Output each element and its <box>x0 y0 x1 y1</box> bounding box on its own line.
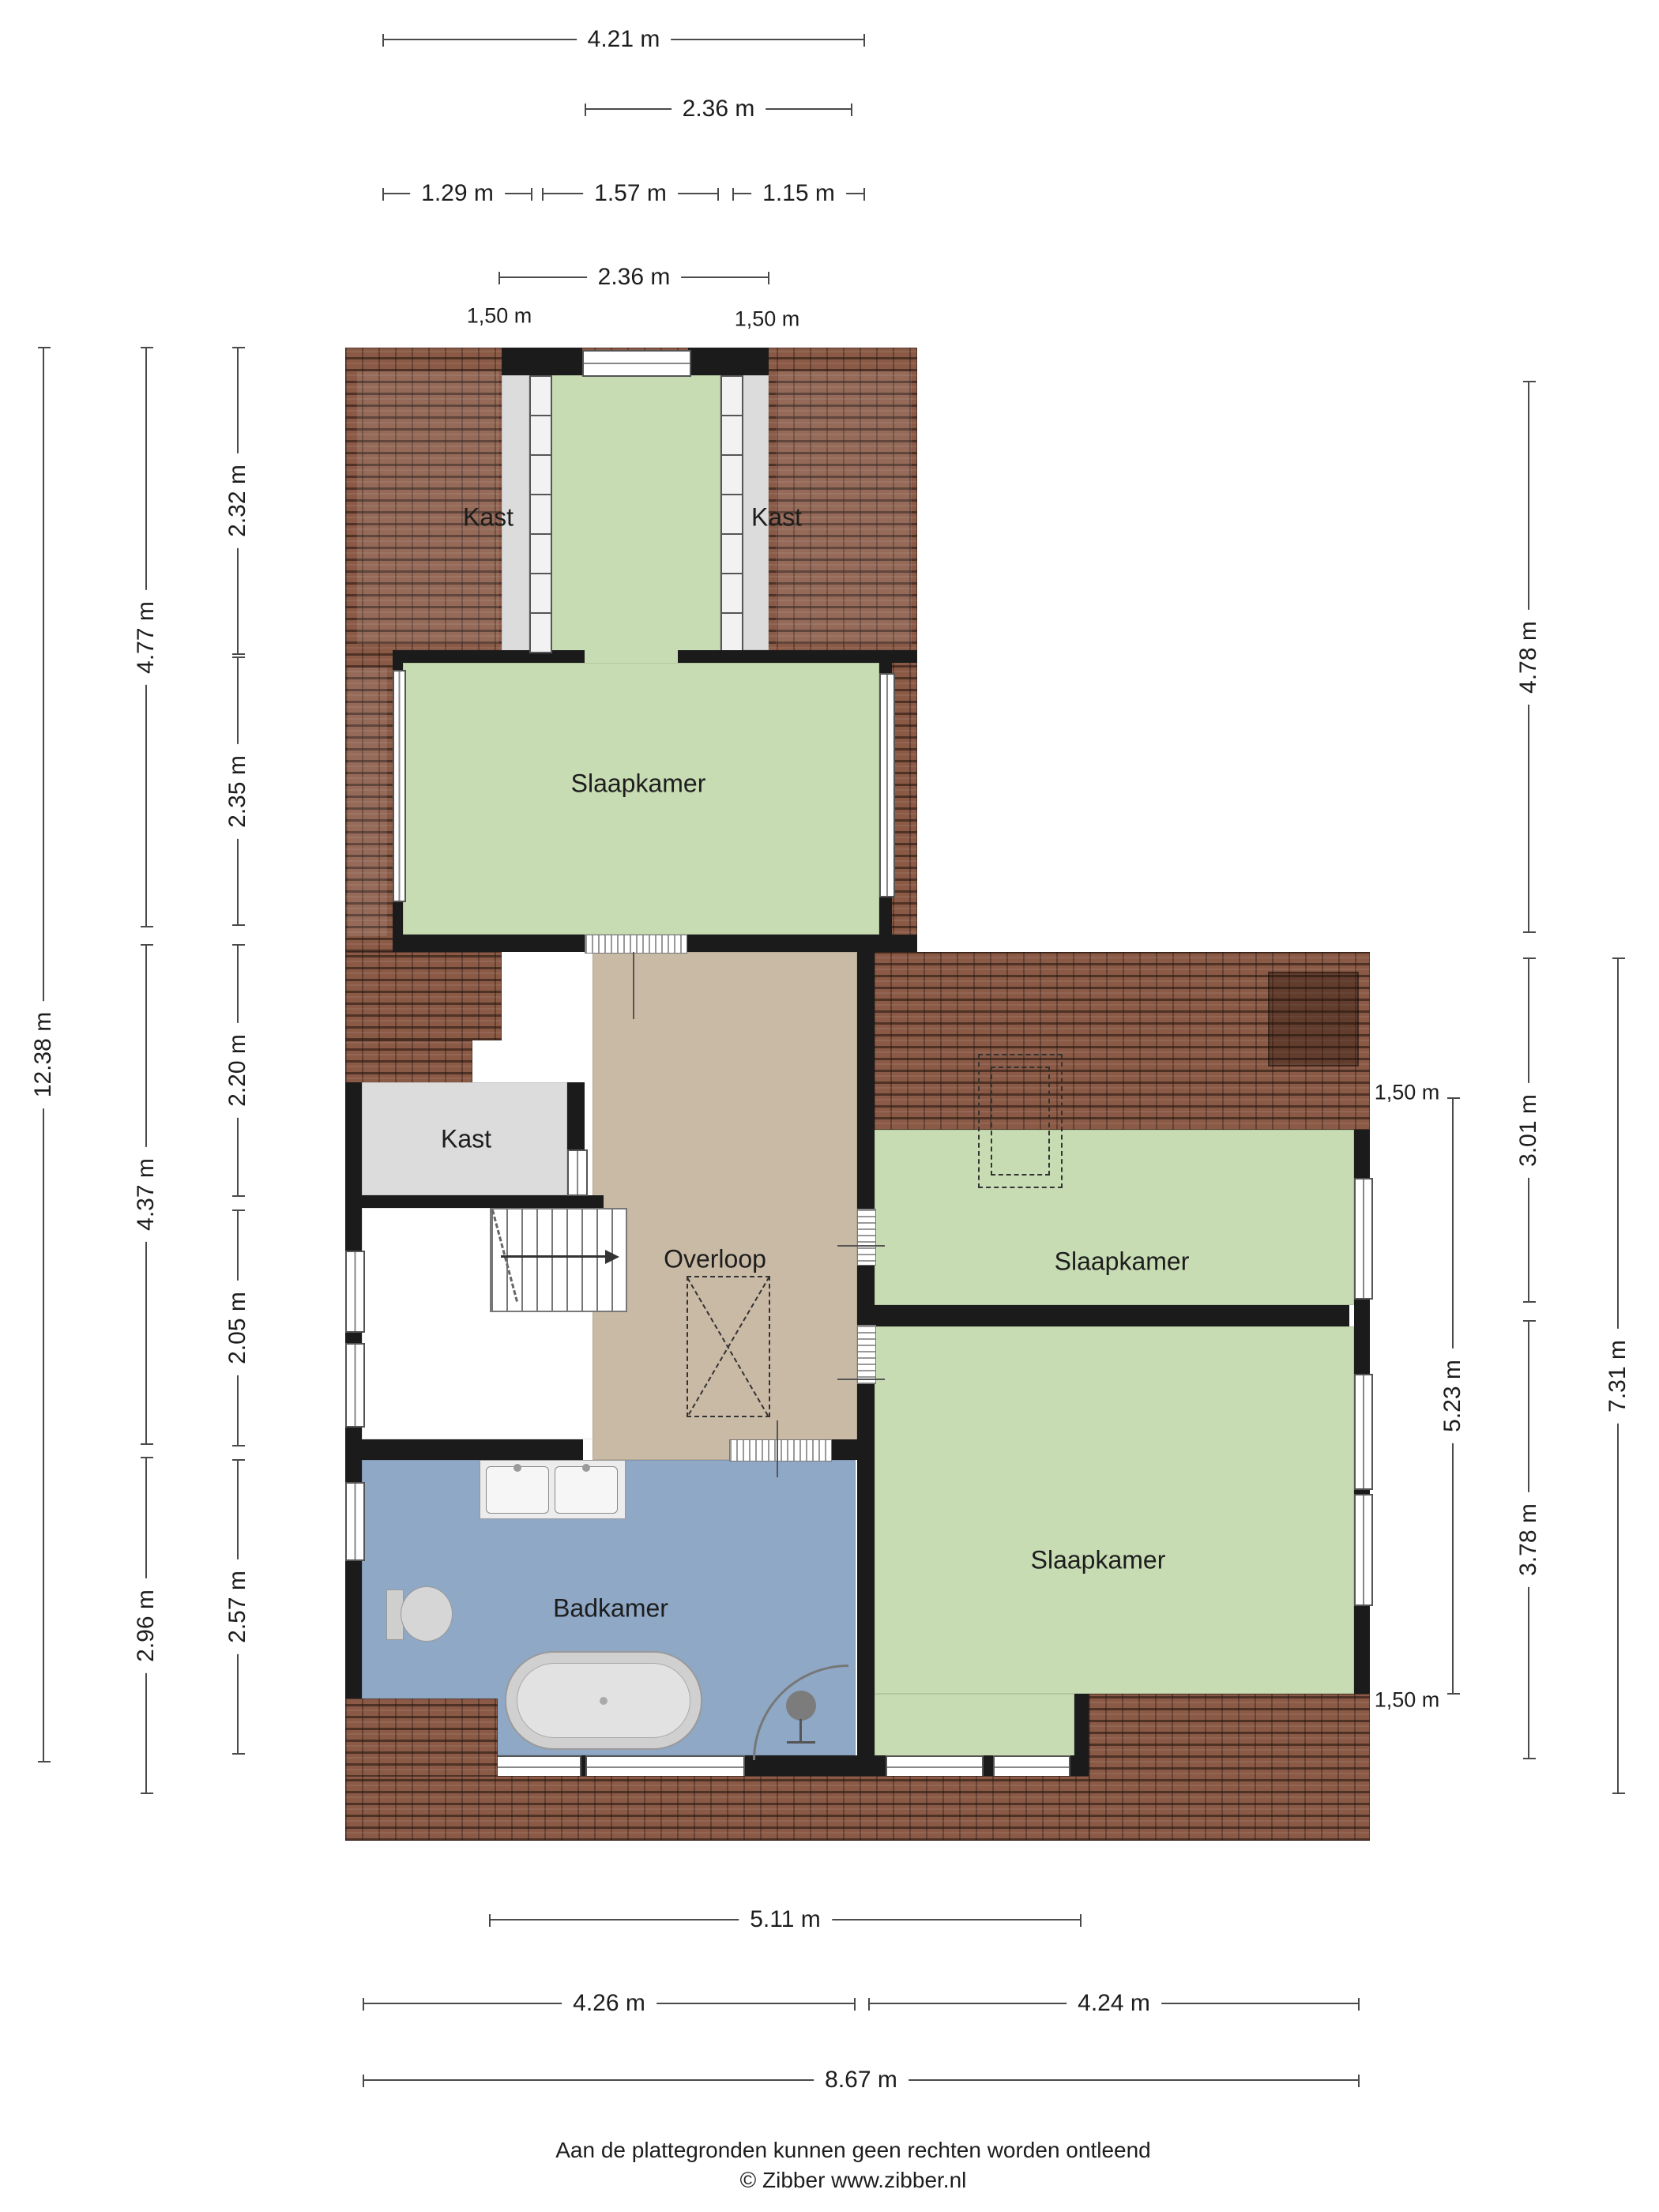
dim-top-1-57: 1.57 m <box>543 193 718 194</box>
dim-left-4-37: 4.37 m <box>145 945 147 1444</box>
roof-highlight <box>348 668 387 936</box>
room-label-slaapkamer-top: Slaapkamer <box>571 769 706 799</box>
dim-label: 2.05 m <box>224 1281 251 1375</box>
room-label-slaapkamer-right-upper: Slaapkamer <box>1055 1247 1190 1277</box>
dim-left-2-96: 2.96 m <box>145 1458 147 1793</box>
dim-right-4-78: 4.78 m <box>1528 382 1529 932</box>
height-marker-1-50-right-lower: 1,50 m <box>1375 1688 1440 1713</box>
chimney-dashed-outline <box>978 1054 1063 1188</box>
roof-middle-left-patch <box>345 952 502 1040</box>
height-marker-1-50-right-upper: 1,50 m <box>1375 1081 1440 1105</box>
roof-middle-left-patch-step <box>345 1040 472 1086</box>
dim-left-2-57: 2.57 m <box>237 1460 239 1754</box>
window <box>345 1343 365 1428</box>
chimney-dashed-inner <box>991 1066 1050 1176</box>
wall <box>1074 1694 1089 1776</box>
window <box>1354 1374 1373 1490</box>
wall <box>857 1305 1349 1326</box>
dim-left-2-35: 2.35 m <box>237 657 239 925</box>
toilet-bowl-icon <box>401 1586 453 1642</box>
dim-label: 4.21 m <box>577 26 671 53</box>
window <box>1354 1178 1373 1300</box>
roof-skylight-inset <box>1268 972 1359 1066</box>
door-center-marker <box>777 1420 778 1477</box>
door-center-marker <box>837 1379 885 1380</box>
tap-icon <box>513 1464 521 1472</box>
wall <box>502 348 582 375</box>
dim-label: 4.24 m <box>1066 1990 1161 2017</box>
floorplan-page: Kast Kast Slaapkamer Kast Overloop Slaap… <box>0 0 1659 2212</box>
wall <box>830 1439 875 1460</box>
room-label-slaapkamer-right-lower: Slaapkamer <box>1031 1546 1166 1575</box>
dim-label: 2.35 m <box>224 744 251 839</box>
dim-label: 5.23 m <box>1439 1349 1466 1443</box>
dim-label: 1.15 m <box>751 180 846 207</box>
dim-label: 4.77 m <box>133 590 160 685</box>
dim-top-2-36-a: 2.36 m <box>585 108 852 110</box>
sink-icon <box>486 1466 549 1514</box>
dim-label: 2.36 m <box>671 96 766 122</box>
door-center-marker <box>633 952 634 1019</box>
wall <box>345 1195 604 1208</box>
door-overloop-bedroom1 <box>857 1209 876 1266</box>
wall <box>393 935 585 952</box>
wall <box>688 348 769 375</box>
room-label-kast-middle: Kast <box>441 1125 491 1154</box>
dim-label: 3.01 m <box>1515 1083 1542 1178</box>
dim-label: 4.78 m <box>1515 610 1542 705</box>
height-marker-1-50-top-left: 1,50 m <box>467 304 532 329</box>
dim-top-2-36-b: 2.36 m <box>499 276 769 278</box>
dim-label: 8.67 m <box>814 2067 908 2093</box>
footer-disclaimer: Aan de plattegronden kunnen geen rechten… <box>300 2138 1406 2163</box>
bedroom-right-upper <box>875 1130 1354 1305</box>
dim-right-7-31: 7.31 m <box>1617 958 1619 1793</box>
roof-bottom-left-patch <box>345 1698 498 1777</box>
dim-right-3-01: 3.01 m <box>1528 958 1529 1302</box>
footer-copyright: © Zibber www.zibber.nl <box>300 2168 1406 2193</box>
dim-label: 12.38 m <box>30 1001 57 1108</box>
dim-right-3-78: 3.78 m <box>1528 1321 1529 1759</box>
dim-label: 1.29 m <box>410 180 505 207</box>
window <box>879 673 895 897</box>
tap-icon <box>582 1464 590 1472</box>
dim-label: 3.78 m <box>1515 1492 1542 1587</box>
dim-label: 2.57 m <box>224 1559 251 1654</box>
door-center-marker <box>837 1245 885 1247</box>
window <box>393 670 406 902</box>
attic-hatch-diagonal <box>688 1277 770 1415</box>
bedroom-top-door <box>585 935 687 954</box>
bedroom-right-lower-ext <box>875 1694 1074 1757</box>
attic-hatch-outline <box>687 1276 770 1417</box>
bedroom-top-strip <box>549 375 720 668</box>
staircase-arrow-head <box>605 1250 619 1264</box>
bedroom-top <box>403 663 879 935</box>
dim-bottom-4-26: 4.26 m <box>363 2003 855 2004</box>
window <box>567 1149 588 1196</box>
dim-label: 4.37 m <box>133 1147 160 1242</box>
door-overloop-bathroom <box>729 1439 832 1461</box>
dim-bottom-8-67: 8.67 m <box>363 2079 1359 2081</box>
dim-label: 2.96 m <box>133 1578 160 1673</box>
dormer-window <box>582 350 691 377</box>
roof-bottom-right-step <box>1089 1694 1370 1841</box>
height-marker-1-50-top-right: 1,50 m <box>735 307 800 332</box>
wall <box>345 1439 583 1460</box>
bedroom-right-lower <box>875 1326 1354 1694</box>
dim-label: 5.11 m <box>739 1906 832 1933</box>
door-overloop-bedroom2 <box>857 1325 876 1384</box>
dim-left-2-05: 2.05 m <box>237 1210 239 1446</box>
room-label-badkamer: Badkamer <box>553 1594 668 1623</box>
bathtub-icon <box>505 1651 702 1750</box>
wall <box>686 935 917 952</box>
shower-head-icon <box>786 1691 816 1721</box>
dim-left-2-32: 2.32 m <box>237 348 239 654</box>
dim-bottom-5-11: 5.11 m <box>490 1919 1081 1920</box>
room-label-kast-top-right: Kast <box>751 503 802 532</box>
dim-left-4-77: 4.77 m <box>145 348 147 927</box>
closet-front-left <box>529 375 552 653</box>
dim-left-2-20: 2.20 m <box>237 945 239 1196</box>
dim-label: 2.36 m <box>587 264 682 291</box>
sink-icon <box>555 1466 618 1514</box>
shower-stand <box>799 1719 802 1743</box>
wall <box>393 650 585 663</box>
room-label-kast-top-left: Kast <box>463 503 513 532</box>
dim-label: 2.32 m <box>224 453 251 548</box>
closet-front-right <box>720 375 743 650</box>
window <box>345 1482 365 1561</box>
dim-label: 2.20 m <box>224 1023 251 1118</box>
dim-label: 4.26 m <box>562 1990 656 2017</box>
room-label-overloop: Overloop <box>664 1245 766 1274</box>
dim-label: 1.57 m <box>583 180 678 207</box>
dim-label: 7.31 m <box>1604 1329 1631 1424</box>
dim-top-1-29: 1.29 m <box>383 193 532 194</box>
window <box>1354 1494 1373 1606</box>
window <box>345 1251 365 1333</box>
dim-right-5-23: 5.23 m <box>1452 1098 1454 1694</box>
dim-top-4-21: 4.21 m <box>383 39 864 40</box>
dim-bottom-4-24: 4.24 m <box>869 2003 1359 2004</box>
shower-base <box>787 1741 815 1744</box>
staircase-arrow <box>501 1255 607 1258</box>
bathtub-drain <box>600 1697 608 1705</box>
dim-top-1-15: 1.15 m <box>733 193 864 194</box>
dim-left-12-38: 12.38 m <box>43 348 44 1762</box>
